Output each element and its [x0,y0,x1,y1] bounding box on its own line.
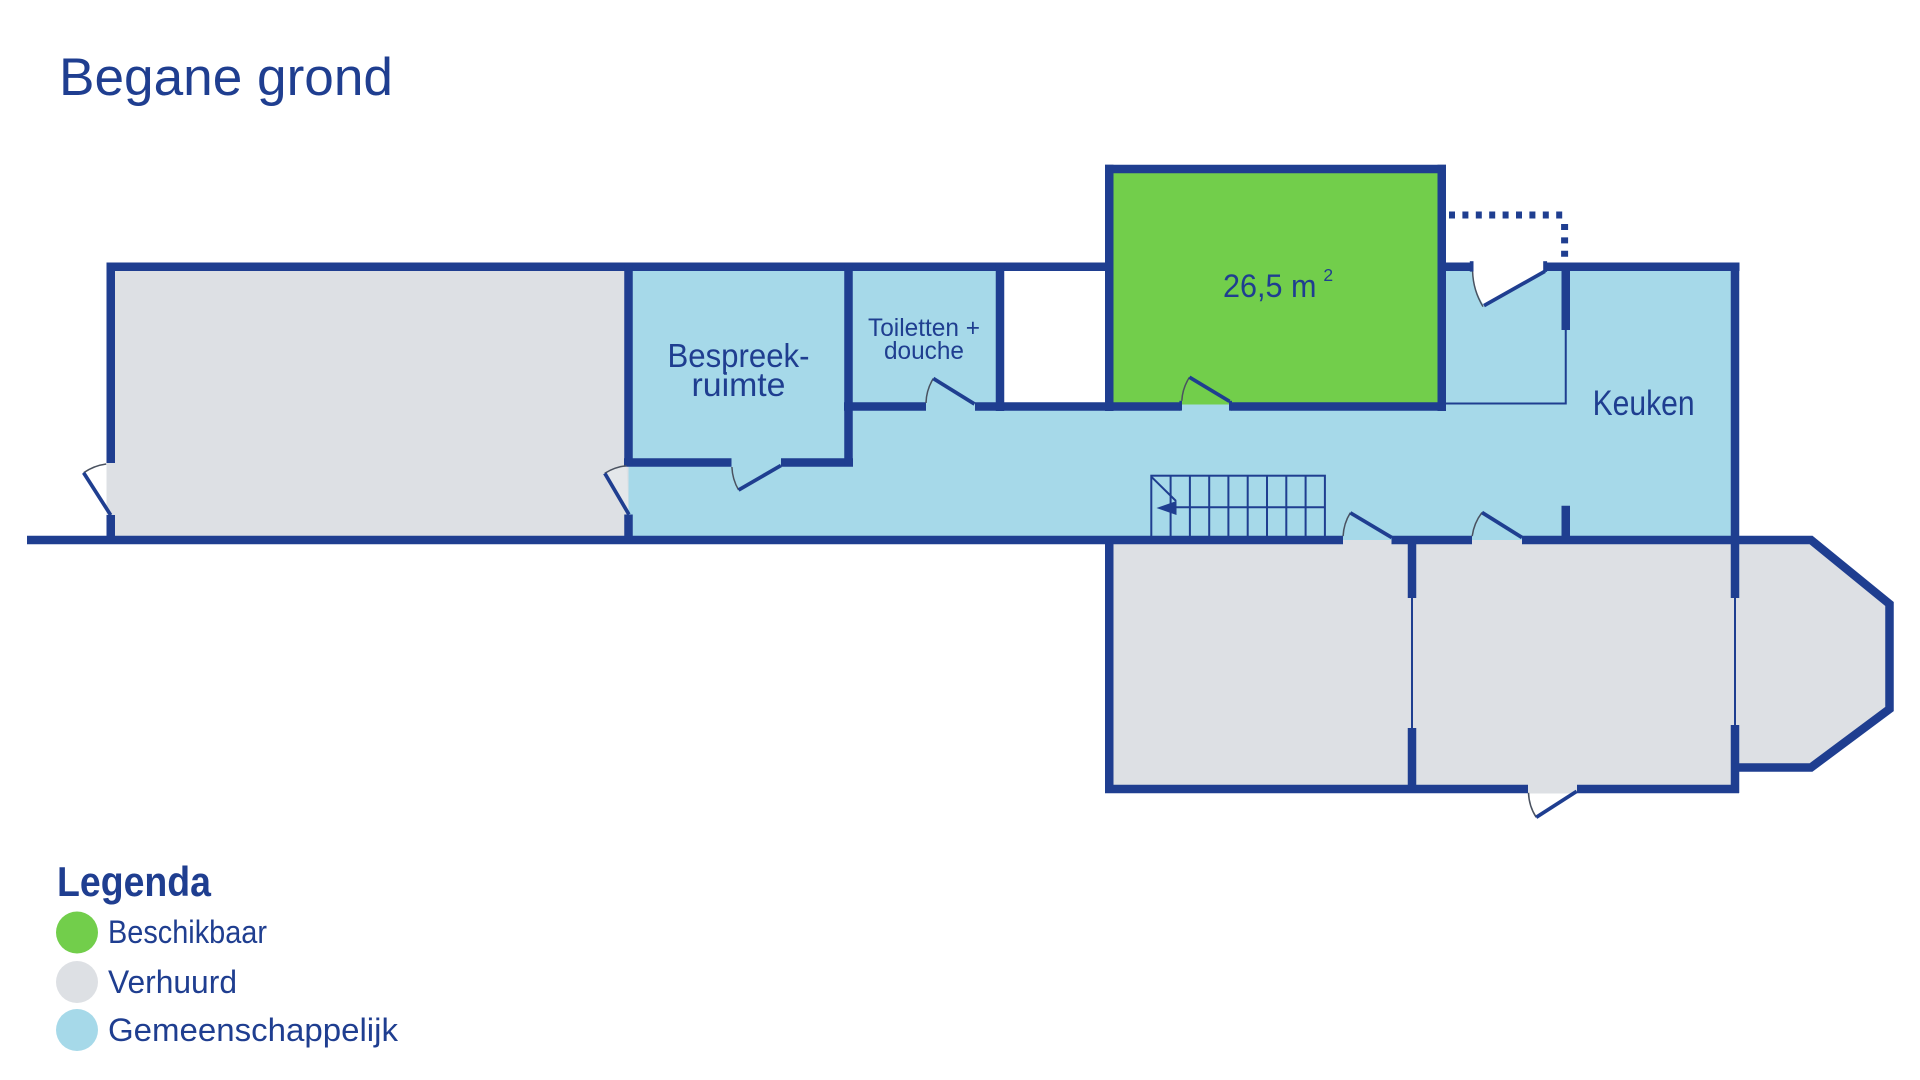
svg-text:Keuken: Keuken [1593,384,1695,423]
svg-text:Legenda: Legenda [57,858,212,905]
svg-text:Verhuurd: Verhuurd [108,964,237,1000]
svg-text:Gemeenschappelijk: Gemeenschappelijk [108,1012,399,1048]
svg-text:26,5 m: 26,5 m [1223,268,1317,304]
svg-text:Begane grond: Begane grond [59,48,393,107]
svg-text:ruimte: ruimte [692,366,786,403]
svg-text:douche: douche [884,337,964,365]
svg-text:2: 2 [1323,265,1333,285]
svg-text:Beschikbaar: Beschikbaar [108,914,267,950]
